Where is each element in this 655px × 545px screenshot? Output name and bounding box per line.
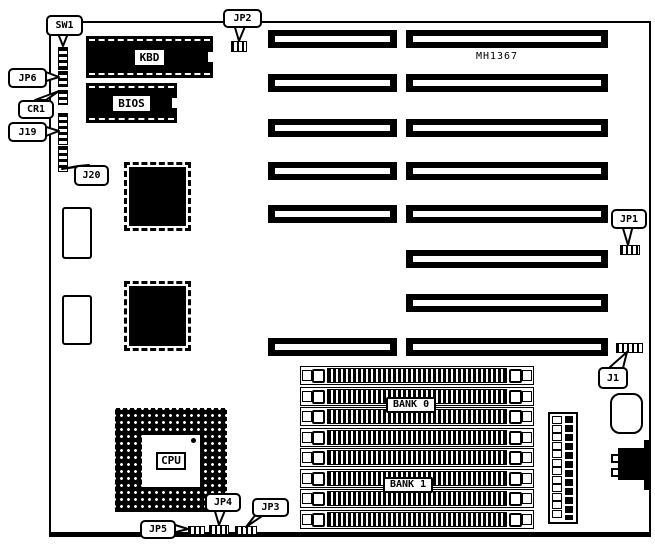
callout-sw1: SW1: [46, 15, 83, 36]
callout-j20: J20: [74, 165, 109, 186]
callout-jp6: JP6: [8, 68, 47, 88]
callout-j19: J19: [8, 122, 47, 142]
callout-jp5: JP5: [140, 520, 176, 539]
callout-tails: [0, 0, 655, 545]
callout-jp3: JP3: [252, 498, 289, 517]
callout-j1: J1: [598, 367, 628, 389]
callout-tail-cr1: [35, 91, 59, 100]
callout-cr1: CR1: [18, 100, 54, 119]
callout-jp2: JP2: [223, 9, 262, 28]
callout-jp4: JP4: [205, 493, 241, 512]
motherboard-diagram: KBD BIOS CPU MH1367 BANK 0 BANK 1 SW1JP6…: [0, 0, 655, 545]
callout-jp1: JP1: [611, 209, 647, 229]
